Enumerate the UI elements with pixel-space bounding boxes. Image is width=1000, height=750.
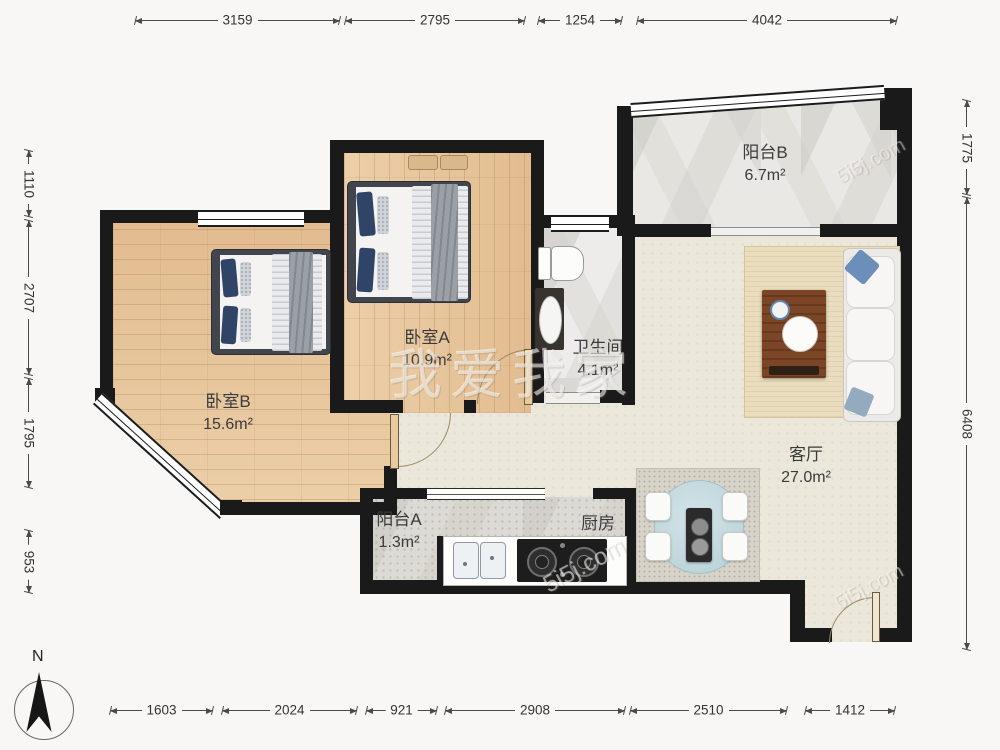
dimension-top-1: 3159 xyxy=(135,16,340,25)
wall-segment xyxy=(360,488,373,592)
bed-blanket xyxy=(289,252,313,353)
bed-pillow xyxy=(377,196,389,234)
dimension-top-3: 1254 xyxy=(538,16,622,25)
dimension-value: 3159 xyxy=(217,13,257,28)
compass-north-label: N xyxy=(32,648,44,666)
room-label-kitchen: 厨房 xyxy=(581,512,615,536)
stove-burner xyxy=(569,547,599,577)
dining-chair xyxy=(645,492,671,521)
stove-dial xyxy=(560,572,565,577)
plate xyxy=(782,316,818,352)
dimension-left-4: 953 xyxy=(24,530,33,593)
room-label-living: 客厅 27.0m² xyxy=(781,443,831,489)
dimension-value: 1795 xyxy=(20,412,37,454)
room-name: 阳台B xyxy=(742,141,787,165)
room-name: 卧室A xyxy=(402,326,452,350)
bathroom-door-opening xyxy=(546,392,600,404)
room-area: 1.3m² xyxy=(376,532,421,554)
plate xyxy=(770,300,790,320)
sink-drain xyxy=(490,556,494,560)
dimension-top-2: 2795 xyxy=(345,16,525,25)
tray xyxy=(769,366,819,375)
room-name: 厨房 xyxy=(581,512,615,536)
dimension-bottom-3: 921 xyxy=(366,706,437,715)
dimension-value: 1775 xyxy=(958,126,975,168)
dimension-bottom-2: 2024 xyxy=(222,706,357,715)
dimension-bottom-4: 2908 xyxy=(445,706,625,715)
room-area: 6.7m² xyxy=(742,165,787,187)
sofa-cushion xyxy=(846,308,895,361)
wall-segment xyxy=(100,210,113,402)
compass: N xyxy=(8,648,80,748)
wall-segment xyxy=(408,140,468,153)
bed-blanket xyxy=(431,184,458,301)
dining-chair xyxy=(645,532,671,561)
exterior-area xyxy=(88,80,332,210)
dimension-value: 1110 xyxy=(20,163,37,203)
wall-segment xyxy=(622,215,635,405)
bed-pillow xyxy=(240,262,251,296)
exterior-area xyxy=(543,80,619,218)
bedroom-b-window xyxy=(198,210,304,227)
bed-pillow xyxy=(220,258,238,297)
dimension-left-1: 1110 xyxy=(24,150,33,217)
dimension-value: 1412 xyxy=(830,703,870,718)
bed-pillow xyxy=(356,247,375,292)
dimension-value: 6408 xyxy=(958,402,975,444)
bathroom-sink xyxy=(539,296,562,344)
wall-segment xyxy=(330,140,344,413)
nightstand xyxy=(408,155,438,170)
wall-segment xyxy=(333,400,403,413)
dimension-bottom-6: 1412 xyxy=(805,706,895,715)
dimension-bottom-5: 2510 xyxy=(630,706,787,715)
room-label-bedroom-b: 卧室B 15.6m² xyxy=(203,390,253,436)
kitchen-sink-basin xyxy=(453,542,479,579)
room-label-bathroom: 卫生间 4.1m² xyxy=(573,336,624,382)
bathroom-window xyxy=(551,215,609,232)
room-area: 4.1m² xyxy=(573,360,624,382)
centerpiece-dish xyxy=(691,518,709,536)
bed-pillow xyxy=(221,306,239,345)
stove-dial xyxy=(560,543,565,548)
dimension-value: 2908 xyxy=(515,703,555,718)
dimension-right-2: 6408 xyxy=(962,197,971,650)
wall-segment xyxy=(362,488,428,499)
room-name: 阳台A xyxy=(376,508,421,532)
wall-segment xyxy=(464,400,476,413)
room-name: 卫生间 xyxy=(573,336,624,360)
room-label-balcony-b: 阳台B 6.7m² xyxy=(742,141,787,187)
kitchen-sink-basin xyxy=(480,542,506,579)
entry-door-leaf xyxy=(872,592,880,642)
toilet-bowl xyxy=(551,246,584,281)
sink-drain xyxy=(463,562,467,566)
room-label-bedroom-a: 卧室A 10.9m² xyxy=(402,326,452,372)
room-area: 15.6m² xyxy=(203,414,253,436)
dimension-value: 2707 xyxy=(20,276,37,318)
wall-segment xyxy=(880,88,912,130)
dimension-value: 1603 xyxy=(141,703,181,718)
dimension-value: 2024 xyxy=(269,703,309,718)
dimension-value: 953 xyxy=(20,544,37,579)
exterior-area xyxy=(88,515,360,655)
balcony-a-window xyxy=(427,488,545,500)
exterior-area xyxy=(360,594,790,655)
bed-pillow xyxy=(240,308,251,342)
dimension-value: 4042 xyxy=(747,13,787,28)
room-area: 27.0m² xyxy=(781,467,831,489)
wall-segment xyxy=(330,140,412,153)
stove-burner xyxy=(527,547,557,577)
toilet-tank xyxy=(538,247,551,280)
balcony-b-slider-track xyxy=(711,227,821,236)
slider-frame-tick xyxy=(702,224,711,237)
balcony-b-pillar xyxy=(617,106,633,236)
dining-chair xyxy=(722,492,748,521)
wall-segment xyxy=(800,628,832,642)
dimension-value: 921 xyxy=(385,703,418,718)
wall-segment xyxy=(827,224,899,237)
wall-segment xyxy=(630,224,704,237)
wall-segment xyxy=(600,390,635,403)
dimension-left-2: 2707 xyxy=(24,220,33,375)
dimension-bottom-1: 1603 xyxy=(110,706,213,715)
room-area: 10.9m² xyxy=(402,350,452,372)
dimension-top-4: 4042 xyxy=(637,16,897,25)
bedroom-a-door-leaf xyxy=(524,349,533,405)
nightstand xyxy=(440,155,468,170)
room-name: 卧室B xyxy=(203,390,253,414)
dimension-value: 1254 xyxy=(560,13,600,28)
room-label-balcony-a: 阳台A 1.3m² xyxy=(376,508,421,554)
floor-plan-canvas: 阳台B 6.7m² 卧室A 10.9m² 卧室B 15.6m² 卫生间 4.1m… xyxy=(0,0,1000,750)
dining-chair xyxy=(722,532,748,561)
room-name: 客厅 xyxy=(781,443,831,467)
dimension-value: 2510 xyxy=(688,703,728,718)
centerpiece-dish xyxy=(691,538,709,556)
dimension-right-1: 1775 xyxy=(962,100,971,195)
dimension-left-3: 1795 xyxy=(24,378,33,488)
dimension-value: 2795 xyxy=(415,13,455,28)
bed-pillow xyxy=(377,252,389,290)
bedroom-b-door-leaf xyxy=(390,414,399,469)
